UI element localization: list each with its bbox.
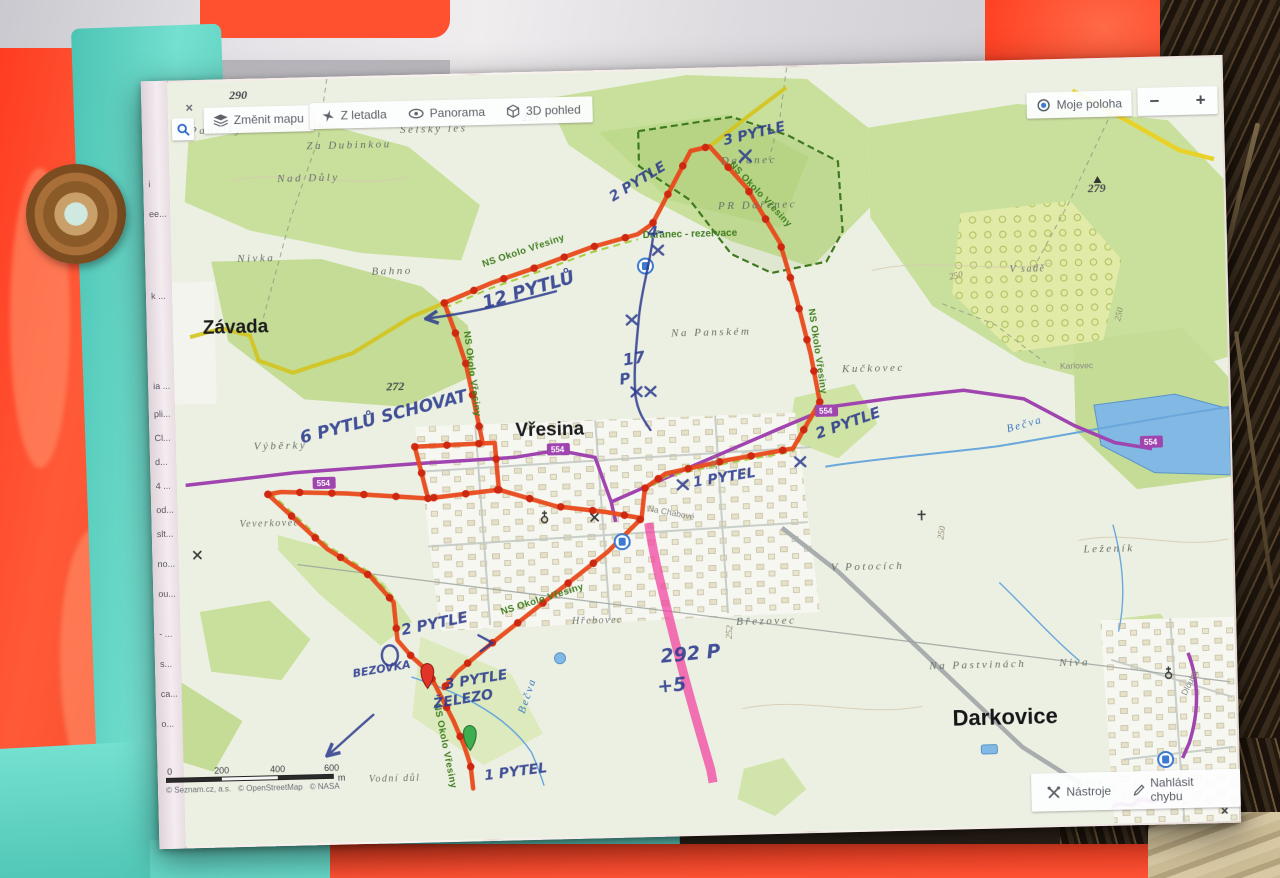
tape-roll bbox=[26, 164, 126, 264]
label-na-panskem: Na Panském bbox=[670, 325, 752, 339]
my-location-label: Moje poloha bbox=[1056, 96, 1122, 112]
sidebar-fragment: slt... bbox=[157, 529, 179, 540]
sidebar-fragment: ee... bbox=[149, 209, 171, 220]
bus-stop-icon[interactable] bbox=[1158, 752, 1173, 767]
from-plane-label: Z letadla bbox=[341, 107, 387, 122]
panorama-label: Panorama bbox=[430, 105, 486, 120]
sidebar-fragment: 4 ... bbox=[156, 481, 178, 492]
report-bug-label: Nahlásit chybu bbox=[1150, 774, 1225, 804]
from-plane-button[interactable]: Z letadla bbox=[314, 107, 395, 123]
scale-600: 600 bbox=[324, 763, 339, 773]
label-bahno: Bahno bbox=[371, 265, 413, 278]
sidebar-fragment: o... bbox=[161, 718, 183, 729]
tools-button[interactable]: Nástroje bbox=[1039, 784, 1119, 800]
photo-scene: i ee... k ... ia ... pli... Cl... d... 4… bbox=[0, 0, 1280, 878]
label-vresina: Vřesina bbox=[515, 419, 585, 442]
sidebar-fragment: ou... bbox=[158, 589, 180, 600]
elev-252b: 252 bbox=[724, 625, 735, 640]
scale-200: 200 bbox=[214, 765, 229, 775]
label-hrebovec: Hřebovec bbox=[571, 615, 623, 627]
map-svg[interactable]: Závada Vřesina Darkovice Padělky Za Dubi… bbox=[167, 57, 1239, 847]
plane-icon bbox=[322, 109, 335, 122]
label-niva: Niva bbox=[1058, 656, 1090, 669]
road-badge-554: 554 bbox=[815, 404, 838, 417]
scale-unit: m bbox=[338, 773, 346, 783]
pen-17: 17 bbox=[621, 347, 647, 370]
label-vodni-dul: Vodní důl bbox=[369, 773, 421, 785]
sidebar-fragment: od... bbox=[156, 505, 178, 516]
label-na-pastvinach: Na Pastvinách bbox=[928, 658, 1026, 672]
svg-text:554: 554 bbox=[819, 407, 833, 416]
search-button[interactable] bbox=[172, 118, 195, 141]
sidebar-fragment: s... bbox=[160, 659, 182, 670]
close-icon[interactable]: × bbox=[185, 100, 193, 115]
pen-minus4: 4- bbox=[646, 223, 664, 241]
svg-text:554: 554 bbox=[317, 479, 331, 488]
sidebar-fragment: d... bbox=[155, 457, 177, 468]
elev-290: 290 bbox=[228, 88, 247, 102]
view-3d-button[interactable]: 3D pohled bbox=[499, 102, 589, 118]
sidebar-fragment: i bbox=[148, 179, 170, 190]
cube-icon bbox=[507, 104, 520, 118]
label-brezovec: Březovec bbox=[736, 614, 797, 627]
svg-text:554: 554 bbox=[551, 445, 565, 454]
bus-stop-icon[interactable] bbox=[614, 534, 629, 549]
label-nad-duly: Nad Důly bbox=[276, 172, 340, 186]
elev-252: 252 bbox=[709, 454, 721, 469]
svg-text:554: 554 bbox=[1144, 438, 1158, 447]
label-vyberky: Výběrky bbox=[254, 439, 308, 452]
zoom-out-button[interactable]: − bbox=[1149, 91, 1159, 111]
sidebar-fragment: pli... bbox=[154, 409, 176, 420]
tools-icon bbox=[1047, 786, 1060, 799]
vest-orange-strip bbox=[200, 0, 450, 38]
pen-plus5: +5 bbox=[656, 673, 687, 698]
view-3d-label: 3D pohled bbox=[526, 103, 581, 118]
zoom-control: − + bbox=[1137, 86, 1218, 116]
panorama-button[interactable]: Panorama bbox=[401, 105, 494, 121]
sidebar-fragment: no... bbox=[157, 559, 179, 570]
eye-icon bbox=[409, 108, 424, 118]
my-location-button[interactable]: Moje poloha bbox=[1026, 90, 1132, 119]
zoom-in-button[interactable]: + bbox=[1195, 90, 1205, 110]
label-kuckovec: Kučkovec bbox=[841, 362, 905, 376]
label-veverkovec: Veverkovec bbox=[240, 518, 300, 530]
location-target-icon bbox=[1036, 98, 1050, 112]
label-karlovec: Karlovec bbox=[1060, 360, 1094, 371]
sidebar-fragment: Cl... bbox=[154, 433, 176, 444]
search-icon bbox=[176, 123, 189, 136]
map-canvas[interactable]: Závada Vřesina Darkovice Padělky Za Dubi… bbox=[167, 57, 1239, 847]
road-badge-554: 554 bbox=[313, 477, 336, 490]
scale-bar: 0 200 400 600 m © Seznam.cz, a.s. © Open… bbox=[166, 762, 357, 795]
sidebar-fragment: - ... bbox=[159, 629, 181, 640]
bus-stop-icon[interactable] bbox=[638, 258, 653, 273]
road-badge-554: 554 bbox=[547, 443, 570, 456]
layers-icon bbox=[214, 114, 228, 126]
change-map-label: Změnit mapu bbox=[234, 111, 304, 127]
label-pr-darenec: PR Dařenec bbox=[717, 198, 797, 212]
change-map-button[interactable]: Změnit mapu bbox=[203, 105, 314, 134]
report-bug-button[interactable]: Nahlásit chybu bbox=[1125, 774, 1233, 805]
label-darkovice: Darkovice bbox=[952, 703, 1058, 731]
label-nivka: Nivka bbox=[236, 252, 275, 265]
sidebar-fragment: ia ... bbox=[153, 381, 175, 392]
label-v-sade: V sadě bbox=[1010, 263, 1046, 275]
attrib-seznam[interactable]: © Seznam.cz, a.s. bbox=[166, 784, 231, 795]
attrib-nasa[interactable]: © NASA bbox=[310, 782, 340, 792]
close-icon-bottom[interactable]: × bbox=[1221, 803, 1229, 818]
footer-toolbar: Nástroje Nahlásit chybu bbox=[1031, 769, 1241, 812]
sidebar-fragment: ca... bbox=[161, 688, 183, 699]
vest-orange-bottom bbox=[330, 844, 1180, 878]
label-zavada: Závada bbox=[203, 316, 269, 339]
printed-map-page: i ee... k ... ia ... pli... Cl... d... 4… bbox=[141, 55, 1241, 849]
scale-400: 400 bbox=[270, 764, 285, 774]
label-lezenik: Leženík bbox=[1082, 542, 1134, 555]
attrib-osm[interactable]: © OpenStreetMap bbox=[238, 783, 303, 794]
elev-250c: 250 bbox=[935, 525, 947, 540]
tools-label: Nástroje bbox=[1066, 784, 1111, 799]
elev-272: 272 bbox=[385, 379, 404, 393]
road-badge-554: 554 bbox=[1140, 435, 1163, 448]
sidebar-fragment: k ... bbox=[151, 291, 173, 302]
scale-0: 0 bbox=[167, 767, 172, 777]
label-v-potocich: V Potocích bbox=[831, 560, 905, 574]
pencil-icon bbox=[1133, 784, 1145, 796]
label-za-dubinkou: Za Dubinkou bbox=[306, 138, 392, 152]
